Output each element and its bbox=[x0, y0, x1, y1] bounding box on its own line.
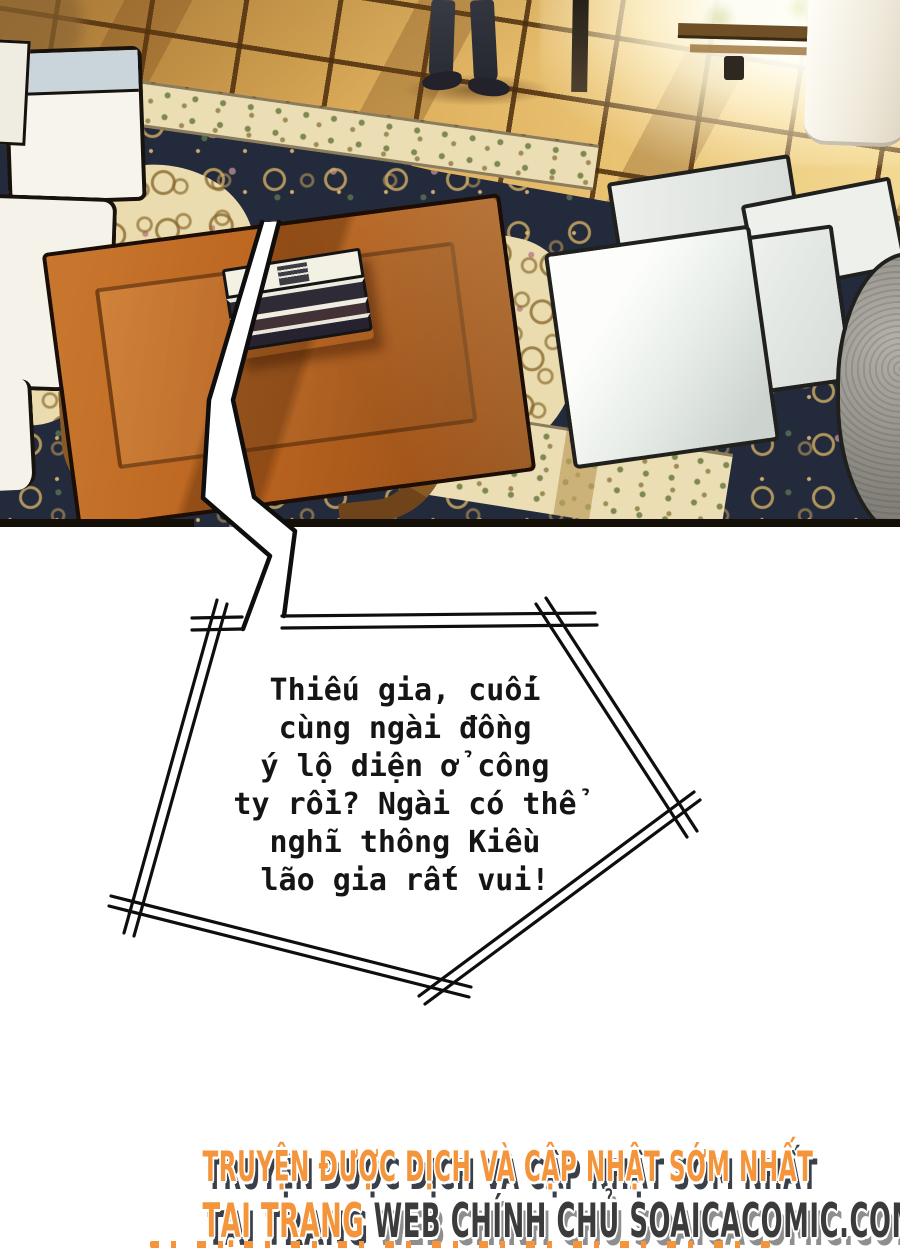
credit-line-1: TRUYỆN ĐƯỢC DỊCH VÀ CẬP NHẬT SỚM NHẤT bbox=[203, 1142, 698, 1191]
standing-person-legs bbox=[420, 0, 530, 110]
bubble-line-3: ý lộ diện ở công bbox=[175, 748, 635, 786]
panel-border-left bbox=[0, 519, 194, 527]
bubble-line-2: cùng ngài đồng bbox=[175, 710, 635, 748]
speech-bubble-text: Thiếu gia, cuối cùng ngài đồng ý lộ diện… bbox=[175, 672, 635, 900]
coffee-table-top bbox=[42, 193, 537, 527]
bubble-line-6: lão gia rất vui! bbox=[175, 862, 635, 900]
bubble-line-1: Thiếu gia, cuối bbox=[175, 672, 635, 710]
window-frame-knob bbox=[724, 56, 744, 80]
book-cover-emblem bbox=[277, 262, 310, 285]
comic-panel bbox=[0, 0, 900, 527]
bubble-line-4: ty rồi? Ngài có thể bbox=[175, 786, 635, 824]
person-left-leg bbox=[429, 0, 456, 80]
window-frame-post bbox=[571, 0, 589, 92]
cutoff-credit-line-fragments bbox=[150, 1241, 770, 1248]
lounge-chaise-seat bbox=[544, 225, 780, 470]
bubble-line-5: nghĩ thông Kiều bbox=[175, 824, 635, 862]
credit-line-2: TẠI TRANG WEB CHÍNH CHỦ SOAICACOMIC.COM bbox=[203, 1194, 698, 1248]
comic-page: Thiếu gia, cuối cùng ngài đồng ý lộ diện… bbox=[0, 0, 900, 1248]
white-sofa-corner bbox=[0, 379, 37, 491]
person-right-leg bbox=[470, 0, 498, 85]
coffee-table-sheen bbox=[46, 198, 532, 527]
panel-border-right bbox=[282, 519, 900, 527]
credit-line-2-orange: TẠI TRANG bbox=[203, 1194, 374, 1248]
credit-line-2-dark: WEB CHÍNH CHỦ SOAICACOMIC.COM bbox=[374, 1194, 900, 1248]
white-vase bbox=[803, 0, 900, 148]
